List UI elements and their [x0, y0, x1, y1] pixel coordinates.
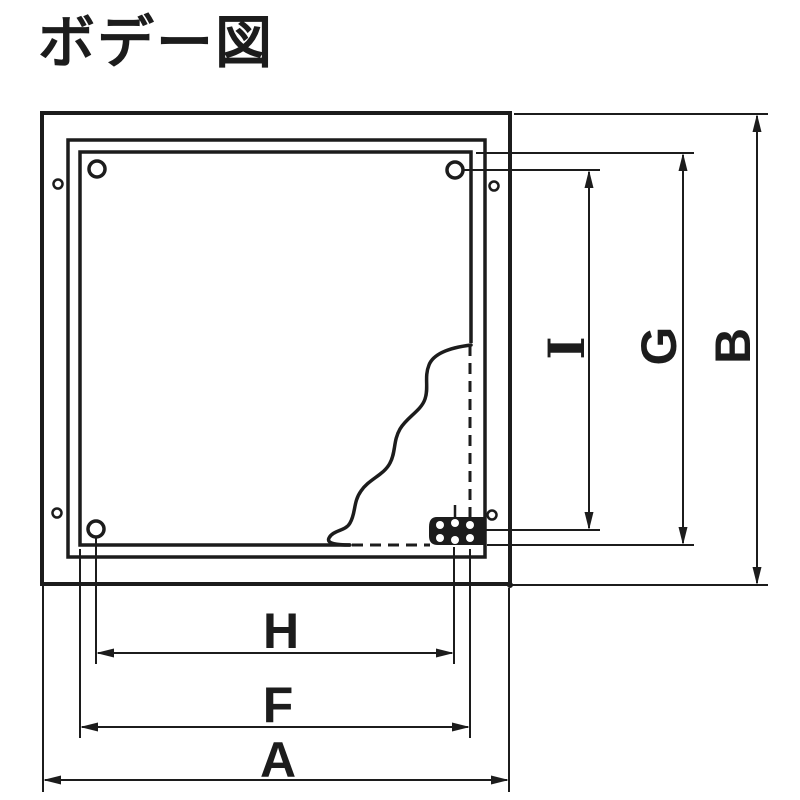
outer-flange-outline — [42, 113, 510, 584]
dim-f-arrow-right — [452, 723, 470, 732]
dim-a-arrow-left — [43, 776, 61, 785]
dim-b-arrow-down — [753, 567, 762, 585]
body-diagram-svg: ボデー図 I — [0, 0, 800, 800]
terminal-hole — [451, 519, 459, 527]
mounting-holes — [88, 161, 463, 537]
dim-label-b: B — [705, 328, 761, 364]
drawing-page: ボデー図 I — [0, 0, 800, 800]
flange-hole-top-right — [490, 182, 499, 191]
terminal-hole — [436, 521, 444, 529]
dim-f-arrow-left — [80, 723, 98, 732]
terminal-hole — [451, 536, 459, 544]
dim-label-h: H — [263, 603, 299, 659]
dim-label-f: F — [263, 677, 294, 733]
dim-b-arrow-up — [753, 114, 762, 132]
flange-holes — [53, 180, 499, 520]
body-outline — [68, 140, 485, 557]
dim-label-g: G — [631, 327, 687, 366]
dim-h-arrow-left — [96, 649, 114, 658]
flange-hole-top-left — [54, 180, 63, 189]
flange-hole-bottom-left — [53, 509, 62, 518]
screw-hole-top-left — [89, 161, 105, 177]
terminal-hole — [436, 534, 444, 542]
dim-g-arrow-up — [679, 153, 688, 171]
break-line — [329, 345, 471, 545]
dim-label-a: A — [260, 732, 296, 788]
dim-h-arrow-right — [436, 649, 454, 658]
terminal-block — [430, 505, 484, 544]
dim-a-arrow-right — [491, 776, 509, 785]
flange-hole-bottom-right — [488, 511, 497, 520]
dim-i-arrow-up — [585, 170, 594, 188]
screw-hole-top-right — [447, 162, 463, 178]
terminal-hole — [466, 534, 474, 542]
opening-outline — [80, 152, 471, 545]
screw-hole-bottom-left — [88, 521, 104, 537]
dim-g-arrow-down — [679, 527, 688, 545]
drawing-title: ボデー図 — [38, 10, 274, 76]
dim-i-arrow-down — [585, 512, 594, 530]
dim-b-junction-dot — [507, 582, 513, 588]
terminal-hole — [466, 521, 474, 529]
opening-visible-edges — [80, 152, 471, 545]
dim-label-i: I — [537, 336, 596, 359]
